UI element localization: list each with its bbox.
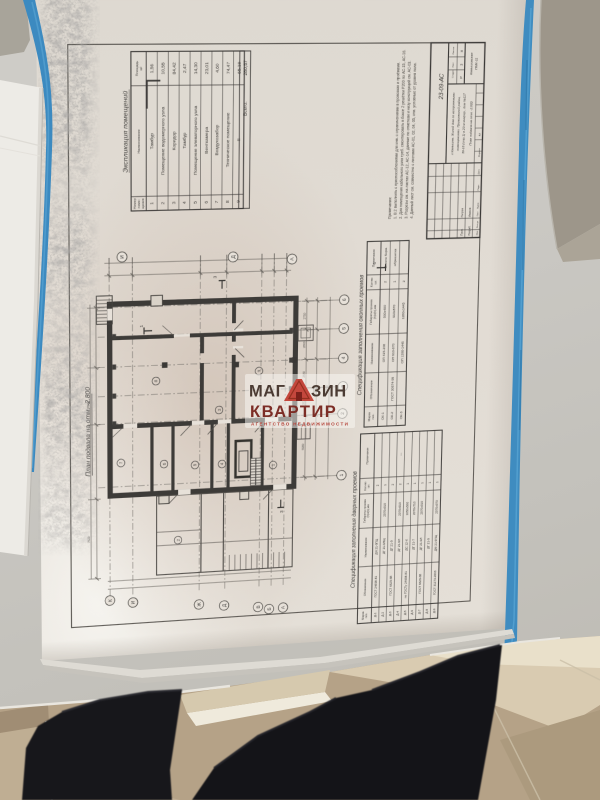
svg-text:Примечание: Примечание xyxy=(372,249,376,267)
svg-text:910х870: 910х870 xyxy=(392,305,396,318)
svg-text:8: 8 xyxy=(460,50,464,52)
svg-text:2070х970: 2070х970 xyxy=(435,500,439,514)
svg-text:Венткамера: Венткамера xyxy=(204,126,209,153)
svg-text:Помещение элеваторного узла: Помещение элеваторного узла xyxy=(193,105,198,175)
svg-text:1: 1 xyxy=(421,482,425,484)
svg-text:Стадия: Стадия xyxy=(452,69,454,78)
svg-text:(h)х(b),мм: (h)х(b),мм xyxy=(366,504,370,517)
svg-text:1: 1 xyxy=(393,281,397,283)
svg-text:Дата: Дата xyxy=(478,169,480,175)
svg-text:5: 5 xyxy=(193,463,198,466)
svg-text:ДГ 21-9Л: ДГ 21-9Л xyxy=(419,538,423,551)
svg-text:ДГ 21-9: ДГ 21-9 xyxy=(427,538,431,549)
svg-text:3: 3 xyxy=(279,510,284,513)
svg-text:Формат: Формат xyxy=(477,147,481,157)
svg-text:Коридор: Коридор xyxy=(171,131,176,150)
svg-text:ОП 910-870: ОП 910-870 xyxy=(391,343,395,362)
svg-text:ОК-2: ОК-2 xyxy=(390,412,394,420)
svg-text:МАГ: МАГ xyxy=(249,383,286,401)
svg-text:помещениями. Приволжский район: помещениями. Приволжский район, xyxy=(456,96,461,151)
svg-text:А: А xyxy=(290,257,296,261)
svg-text:Лист: Лист xyxy=(453,61,455,67)
svg-text:Наименование: Наименование xyxy=(364,537,368,557)
svg-text:щения: щения xyxy=(141,198,145,209)
svg-text:м²: м² xyxy=(139,66,143,71)
svg-text:6: 6 xyxy=(342,298,348,301)
svg-text:1,56: 1,56 xyxy=(149,63,154,73)
svg-text:ПМК-11: ПМК-11 xyxy=(474,58,478,70)
svg-text:3: 3 xyxy=(459,64,463,66)
svg-text:ДГ 21-9ЛЩ: ДГ 21-9ЛЩ xyxy=(382,538,386,554)
svg-text:280,57: 280,57 xyxy=(243,60,249,76)
svg-text:—: — xyxy=(399,452,403,456)
svg-text:1: 1 xyxy=(413,482,417,484)
svg-text:по ГОСТу 24698-81: по ГОСТу 24698-81 xyxy=(403,571,407,598)
svg-text:Наименование: Наименование xyxy=(370,343,374,365)
svg-text:ГОСТ 6629-88: ГОСТ 6629-88 xyxy=(389,575,393,595)
svg-text:7: 7 xyxy=(119,461,124,464)
svg-text:84,42: 84,42 xyxy=(171,62,176,75)
svg-text:1: 1 xyxy=(406,483,410,485)
svg-text:1: 1 xyxy=(436,481,440,483)
svg-text:2: 2 xyxy=(160,201,165,204)
svg-text:Разраб.: Разраб. xyxy=(467,225,471,235)
svg-text:3: 3 xyxy=(217,408,222,411)
svg-text:шт.: шт. xyxy=(367,484,371,488)
svg-text:План подвала на отм. -2.800: План подвала на отм. -2.800 xyxy=(469,101,474,145)
svg-text:2,47: 2,47 xyxy=(182,63,187,73)
svg-text:Листов: Листов xyxy=(453,46,455,54)
svg-text:9: 9 xyxy=(257,369,262,372)
svg-text:обрешетка: обрешетка xyxy=(393,249,397,267)
svg-text:2070х910: 2070х910 xyxy=(420,501,424,515)
svg-text:Обозначение: Обозначение xyxy=(363,578,367,596)
svg-text:Кол.уч: Кол.уч xyxy=(477,220,479,228)
svg-text:А3: А3 xyxy=(478,132,482,136)
svg-text:4: 4 xyxy=(341,356,347,359)
svg-text:КВАРТИР: КВАРТИР xyxy=(250,403,337,421)
svg-text:23-09-АС: 23-09-АС xyxy=(439,73,445,100)
svg-text:Подп.: Подп. xyxy=(478,184,480,190)
svg-text:7: 7 xyxy=(214,200,219,203)
svg-text:Лист: Лист xyxy=(477,210,479,216)
svg-text:ОК-1: ОК-1 xyxy=(381,412,385,420)
svg-text:Воздухозабор: Воздухозабор xyxy=(214,124,219,155)
svg-text:Всего:: Всего: xyxy=(243,101,249,116)
svg-text:поз.: поз. xyxy=(371,414,375,420)
svg-text:930х400: 930х400 xyxy=(383,305,387,318)
svg-text:ДМ 21-9ГЩ: ДМ 21-9ГЩ xyxy=(434,535,438,551)
svg-text:Камышовская: Камышовская xyxy=(469,53,473,75)
svg-text:ЗИН: ЗИН xyxy=(311,383,347,401)
svg-text:1: 1 xyxy=(271,463,276,466)
svg-text:Иванов: Иванов xyxy=(468,207,472,217)
svg-text:Стекло борм.: Стекло борм. xyxy=(384,247,388,269)
svg-text:5: 5 xyxy=(193,201,198,204)
svg-text:ГОСТ 31173-2003: ГОСТ 31173-2003 xyxy=(433,570,437,595)
svg-text:2: 2 xyxy=(176,538,181,541)
svg-text:1280х1445: 1280х1445 xyxy=(401,302,405,319)
svg-text:Петров: Петров xyxy=(460,208,464,218)
svg-text:ГОСТ 30674-99: ГОСТ 30674-99 xyxy=(390,377,394,401)
svg-text:АГЕНТСТВО НЕДВИЖИМОСТИ: АГЕНТСТВО НЕДВИЖИМОСТИ xyxy=(251,422,349,427)
svg-text:4,60: 4,60 xyxy=(215,63,220,73)
svg-text:Примечание: Примечание xyxy=(365,447,369,464)
svg-text:4: 4 xyxy=(220,462,225,465)
svg-text:ОП 415-200: ОП 415-200 xyxy=(382,344,386,363)
svg-text:23,01: 23,01 xyxy=(204,62,209,75)
svg-text:№док.: №док. xyxy=(477,202,480,209)
svg-text:шт.: шт. xyxy=(373,280,377,285)
svg-text:2070х710: 2070х710 xyxy=(413,501,417,515)
svg-text:5: 5 xyxy=(342,327,348,330)
svg-text:Техническое помещение: Техническое помещение xyxy=(225,112,230,167)
svg-text:10,55: 10,55 xyxy=(160,62,165,75)
svg-text:2: 2 xyxy=(376,484,380,486)
svg-text:1050х560: 1050х560 xyxy=(405,502,409,516)
svg-text:г.Камышев. Жилой дом со встрое: г.Камышев. Жилой дом со встроенными xyxy=(450,92,455,155)
svg-text:Примечания:: Примечания: xyxy=(388,197,392,219)
svg-text:Помещение водомерного узла: Помещение водомерного узла xyxy=(160,106,165,175)
svg-text:3: 3 xyxy=(171,201,176,204)
svg-text:1: 1 xyxy=(149,202,154,205)
svg-text:— II —: — II — xyxy=(236,132,241,147)
svg-text:2: 2 xyxy=(391,484,395,486)
svg-text:ДС 12-Х: ДС 12-Х xyxy=(404,538,408,551)
svg-text:И: И xyxy=(120,255,126,259)
svg-text:2: 2 xyxy=(402,280,406,282)
svg-text:ОП 1280-1445: ОП 1280-1445 xyxy=(400,341,404,363)
svg-text:Р: Р xyxy=(459,76,463,79)
svg-text:Наименование: Наименование xyxy=(137,129,141,153)
svg-text:74,47: 74,47 xyxy=(226,62,231,75)
svg-text:2860: 2860 xyxy=(302,341,306,348)
svg-text:ГОСТ 6629-88: ГОСТ 6629-88 xyxy=(418,574,422,594)
svg-text:Тамбур: Тамбур xyxy=(149,133,154,150)
svg-text:Д: Д xyxy=(231,255,237,259)
svg-text:6: 6 xyxy=(203,200,208,203)
svg-text:5980: 5980 xyxy=(301,443,305,450)
svg-text:1: 1 xyxy=(139,324,144,327)
svg-text:Тамбур: Тамбур xyxy=(182,132,187,149)
svg-text:14,30: 14,30 xyxy=(193,62,198,75)
svg-text:1: 1 xyxy=(428,482,432,484)
svg-text:1: 1 xyxy=(383,484,387,486)
svg-text:ДН 21-9ГЩ: ДН 21-9ГЩ xyxy=(375,539,379,555)
svg-text:1: 1 xyxy=(339,473,345,476)
svg-text:Спецификация заполнения оконны: Спецификация заполнения оконных проемов xyxy=(357,275,365,396)
svg-text:39-16 (стр.1) в 20-м микрор.,: 39-16 (стр.1) в 20-м микрор., дом №117 xyxy=(461,93,466,154)
svg-text:2070х910: 2070х910 xyxy=(383,503,387,517)
svg-text:2: 2 xyxy=(398,483,402,485)
svg-text:(h)х(b),мм: (h)х(b),мм xyxy=(373,305,377,319)
svg-text:Спецификация заполнения дверны: Спецификация заполнения дверных проемов xyxy=(351,471,359,588)
svg-text:65,19: 65,19 xyxy=(237,61,242,74)
svg-text:ГОСТ 24698-81: ГОСТ 24698-81 xyxy=(374,576,378,598)
svg-text:9: 9 xyxy=(236,200,241,203)
svg-text:ДГ 21-9Л: ДГ 21-9Л xyxy=(397,539,401,552)
svg-text:Экспликация помещений: Экспликация помещений xyxy=(121,91,129,173)
svg-text:6: 6 xyxy=(162,462,167,465)
svg-text:8: 8 xyxy=(225,200,230,203)
svg-text:Пров.: Пров. xyxy=(460,228,464,236)
svg-text:ОК-3: ОК-3 xyxy=(399,411,403,419)
svg-text:4: 4 xyxy=(182,201,187,204)
svg-text:3: 3 xyxy=(212,275,217,278)
svg-text:2070х910: 2070х910 xyxy=(398,502,402,516)
svg-text:2750: 2750 xyxy=(303,312,307,319)
svg-text:Изм: Изм xyxy=(477,231,479,236)
svg-text:ДГ 21-7: ДГ 21-7 xyxy=(412,539,416,550)
svg-text:2: 2 xyxy=(383,281,387,283)
svg-text:Обозначение: Обозначение xyxy=(370,380,374,399)
svg-text:8: 8 xyxy=(154,379,159,382)
svg-text:ДГ 21-9: ДГ 21-9 xyxy=(390,540,394,551)
